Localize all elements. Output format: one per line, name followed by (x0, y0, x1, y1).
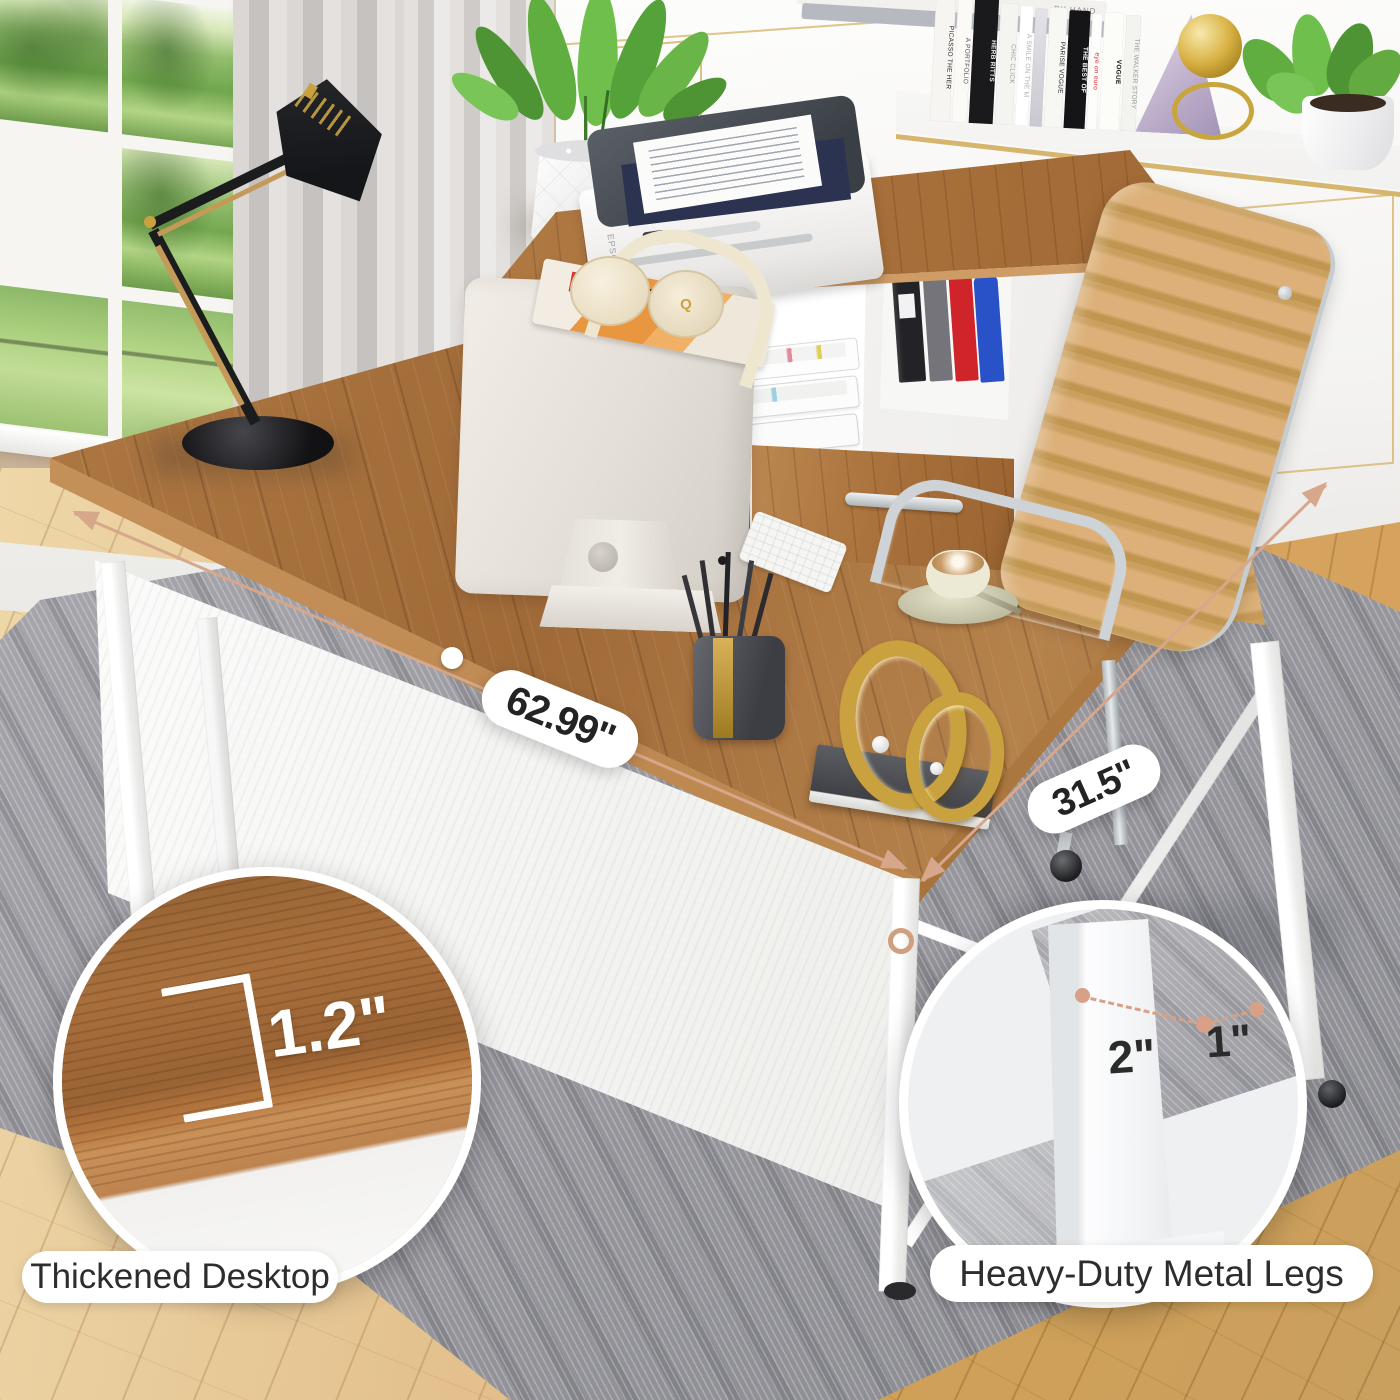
legs-caption-text: Heavy-Duty Metal Legs (959, 1253, 1344, 1295)
imac-stand-neck (559, 518, 682, 596)
leg-measure-dot (1075, 988, 1090, 1003)
globe-sphere (1178, 14, 1242, 78)
leg-side-width-value: 1" (1204, 1015, 1253, 1067)
window-pane (0, 285, 108, 437)
headphones-earcup (570, 256, 650, 326)
imac-stand-hole (588, 542, 618, 572)
window-pane (0, 133, 108, 285)
edge-highlight-dot (441, 647, 463, 669)
chair-frame-cap (1278, 286, 1292, 300)
binder-label (898, 294, 916, 319)
headphones-earcup: Q (648, 270, 724, 338)
thickness-value: 1.2" (263, 981, 395, 1071)
leg-front-width: 2" (1106, 1027, 1157, 1084)
desk-lamp-base (182, 416, 334, 470)
plant-soil (1310, 94, 1386, 112)
legs-caption: Heavy-Duty Metal Legs (930, 1245, 1373, 1302)
globe-stand (1172, 82, 1254, 140)
thickness-caption-text: Thickened Desktop (30, 1257, 330, 1297)
headphones-logo: Q (680, 296, 692, 313)
pen-cup (693, 636, 785, 740)
thickness-caption: Thickened Desktop (22, 1251, 338, 1303)
window-pane (122, 0, 234, 148)
pen-cup-gold-band (713, 638, 733, 738)
leg-highlight-ring-icon (888, 928, 914, 954)
chair-caster-wheel (1318, 1080, 1346, 1108)
bookshelf-books: PICASSO THE HER A PORTFOLIO HERB RITTS C… (930, 0, 1207, 135)
sculpture-pearl (872, 736, 889, 753)
desk-lamp-joint (144, 216, 156, 228)
sculpture-pearl (930, 762, 943, 775)
leg-side-width: 1" (1204, 1015, 1253, 1068)
chair-caster-wheel (1050, 850, 1082, 882)
leg-front-width-value: 2" (1106, 1028, 1157, 1083)
product-scene: BY HAND PICASSO THE HER A PORTFOLIO HERB… (0, 0, 1400, 1400)
coffee-latte-art (932, 551, 984, 575)
leg-measure-dot (1249, 1002, 1264, 1017)
window (0, 0, 256, 483)
window-pane (0, 0, 108, 132)
